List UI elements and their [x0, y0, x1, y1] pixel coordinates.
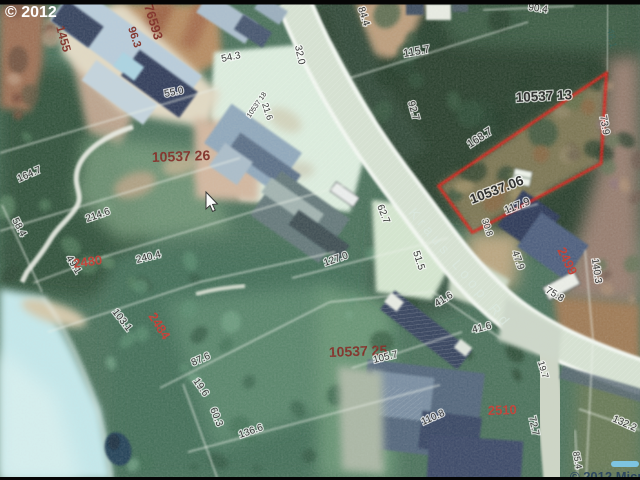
- svg-text:© 2012: © 2012: [5, 4, 57, 21]
